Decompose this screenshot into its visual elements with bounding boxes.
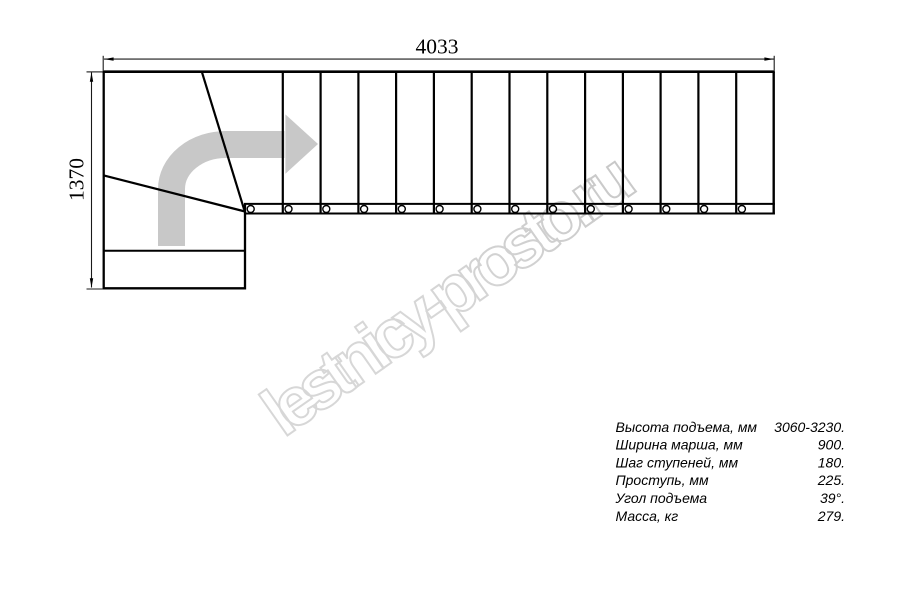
svg-text:180.: 180. <box>818 454 845 470</box>
svg-text:Масса, кг: Масса, кг <box>616 508 679 524</box>
svg-text:3060-3230.: 3060-3230. <box>774 419 845 435</box>
svg-text:Проступь, мм: Проступь, мм <box>616 472 710 488</box>
svg-text:1370: 1370 <box>65 158 89 201</box>
svg-text:279.: 279. <box>817 508 845 524</box>
svg-text:Высота подъема, мм: Высота подъема, мм <box>616 419 758 435</box>
svg-text:Угол подъема: Угол подъема <box>615 490 708 506</box>
svg-text:4033: 4033 <box>416 35 459 59</box>
svg-text:39°.: 39°. <box>820 490 845 506</box>
svg-text:Ширина марша, мм: Ширина марша, мм <box>616 437 744 453</box>
svg-text:900.: 900. <box>818 437 845 453</box>
svg-text:Шаг ступеней, мм: Шаг ступеней, мм <box>616 454 739 470</box>
svg-text:225.: 225. <box>817 472 845 488</box>
